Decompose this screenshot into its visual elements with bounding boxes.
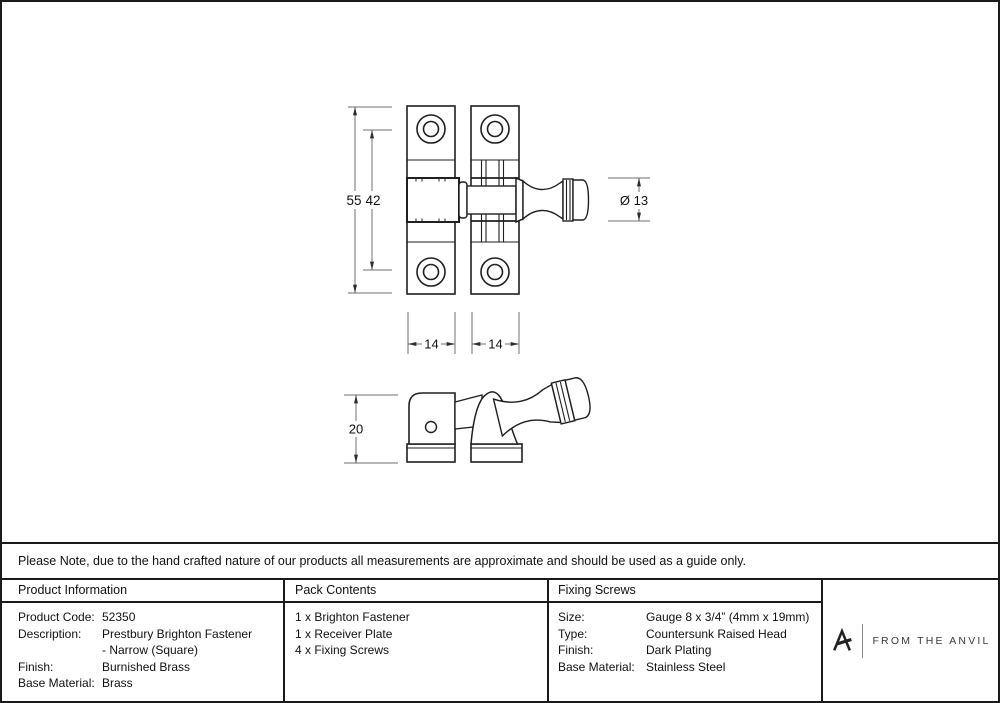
fixing-screws-header: Fixing Screws	[549, 580, 821, 603]
product-information-header: Product Information	[2, 580, 283, 603]
from-the-anvil-logo: FROM THE ANVIL	[830, 624, 990, 658]
front-view	[407, 106, 589, 294]
product-spec-sheet: 55 42 Ø 13 14 14 20 Please Note, due to …	[0, 0, 1000, 703]
row-label: Base Material:	[18, 675, 102, 692]
row-value: Brass	[102, 675, 133, 692]
brand-logo-cell: FROM THE ANVIL	[823, 580, 998, 701]
table-row: - Narrow (Square)	[18, 642, 283, 659]
row-value: Burnished Brass	[102, 659, 190, 676]
list-item: 1 x Receiver Plate	[295, 626, 547, 643]
dim-label-55: 55	[346, 193, 361, 208]
product-information-body: Product Code: 52350 Description: Prestbu…	[2, 603, 283, 692]
measurement-note-text: Please Note, due to the hand crafted nat…	[18, 554, 746, 568]
logo-brand-text: FROM THE ANVIL	[872, 635, 990, 647]
side-view	[407, 375, 593, 462]
row-label: Base Material:	[558, 659, 646, 676]
table-row: Base Material: Stainless Steel	[558, 659, 821, 676]
pack-contents-column: Pack Contents 1 x Brighton Fastener 1 x …	[285, 580, 549, 701]
dim-label-diameter: Ø 13	[620, 193, 648, 208]
anvil-monogram-icon	[830, 628, 854, 653]
table-row: Finish: Dark Plating	[558, 642, 821, 659]
dim-label-14-right: 14	[488, 337, 502, 352]
row-label	[18, 642, 102, 659]
table-row: Description: Prestbury Brighton Fastener	[18, 626, 283, 643]
logo-divider	[862, 624, 863, 658]
row-label: Description:	[18, 626, 102, 643]
pack-contents-header: Pack Contents	[285, 580, 547, 603]
row-value: - Narrow (Square)	[102, 642, 198, 659]
row-label: Finish:	[18, 659, 102, 676]
row-value: Countersunk Raised Head	[646, 626, 787, 643]
table-row: Finish: Burnished Brass	[18, 659, 283, 676]
table-row: Type: Countersunk Raised Head	[558, 626, 821, 643]
product-info-table: Product Information Product Code: 52350 …	[2, 580, 998, 701]
dim-label-42: 42	[365, 193, 380, 208]
list-item: 4 x Fixing Screws	[295, 642, 547, 659]
row-value: Stainless Steel	[646, 659, 725, 676]
list-item: 1 x Brighton Fastener	[295, 609, 547, 626]
fastener-drawing-svg: 55 42 Ø 13 14 14 20	[2, 2, 998, 542]
knob-front	[516, 178, 589, 222]
fixing-screws-body: Size: Gauge 8 x 3/4” (4mm x 19mm) Type: …	[549, 603, 821, 675]
row-value: Gauge 8 x 3/4” (4mm x 19mm)	[646, 609, 809, 626]
product-information-column: Product Information Product Code: 52350 …	[2, 580, 285, 701]
row-label: Size:	[558, 609, 646, 626]
row-label: Product Code:	[18, 609, 102, 626]
table-row: Product Code: 52350	[18, 609, 283, 626]
row-label: Finish:	[558, 642, 646, 659]
table-row: Size: Gauge 8 x 3/4” (4mm x 19mm)	[558, 609, 821, 626]
knob-side	[493, 375, 593, 438]
row-label: Type:	[558, 626, 646, 643]
dim-label-20: 20	[349, 422, 363, 437]
pack-contents-body: 1 x Brighton Fastener 1 x Receiver Plate…	[285, 603, 547, 659]
dim-label-14-left: 14	[424, 337, 438, 352]
table-row: Base Material: Brass	[18, 675, 283, 692]
measurement-note-bar: Please Note, due to the hand crafted nat…	[2, 542, 998, 580]
row-value: Dark Plating	[646, 642, 711, 659]
row-value: Prestbury Brighton Fastener	[102, 626, 252, 643]
technical-drawing: 55 42 Ø 13 14 14 20	[2, 2, 998, 542]
row-value: 52350	[102, 609, 135, 626]
fixing-screws-column: Fixing Screws Size: Gauge 8 x 3/4” (4mm …	[549, 580, 823, 701]
